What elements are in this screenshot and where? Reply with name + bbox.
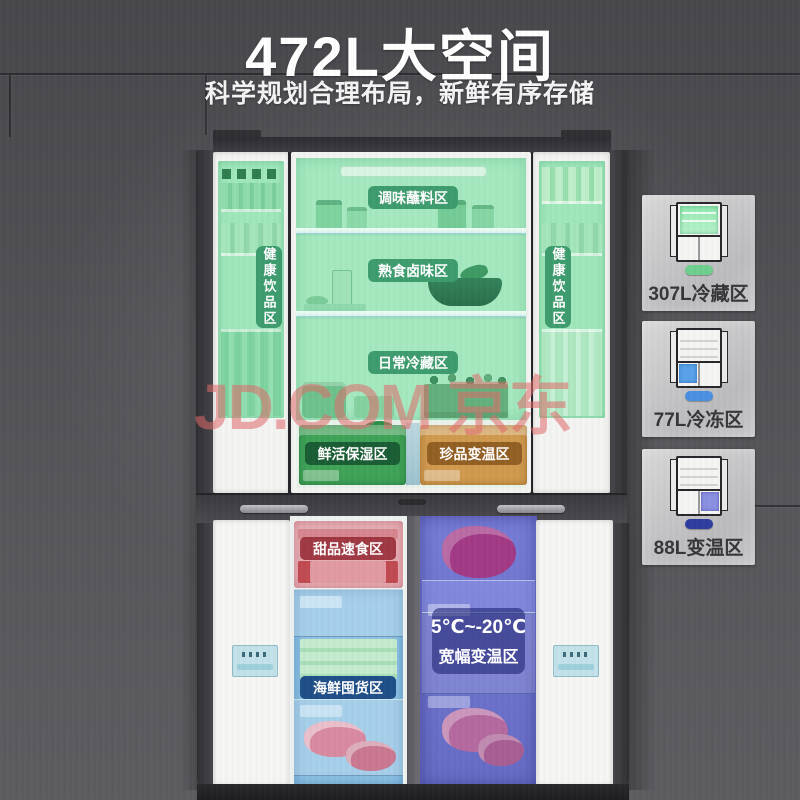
control-slot [558,664,594,670]
mini-fridge-icon [676,202,722,262]
drawer-logo-chip [424,470,460,481]
zone-label-dessert: 甜品速食区 [300,537,396,560]
ceiling-light [340,166,487,177]
fridge-door-flap-icon [670,205,677,257]
highlight-bottom-left-section [679,364,697,383]
capacity-pill [685,265,713,275]
capacity-card-cold: 307L冷藏区 [642,195,755,311]
capacity-card-label: 77L冷冻区 [642,405,755,432]
capacity-pill [685,391,713,401]
lower-right-door-edge [613,523,629,785]
highlight-bottom-right-section [701,492,719,511]
promo-image: 472L大空间 科学规划合理布局，新鲜有序存储 健康饮品区 [0,0,800,800]
highlight-top-section [680,206,718,234]
door-zone-label-left: 健康饮品区 [256,246,282,328]
hinge-right [497,505,565,513]
mini-fridge-icon [676,456,722,516]
meat-shape [442,526,516,578]
door-control-panel [232,645,278,677]
meat-shape [478,734,524,766]
door-bin-packs [221,183,281,212]
glass-shelf [296,228,526,234]
bowl-shape [428,278,502,306]
zone-label-wide-variable: 宽幅变温区 [438,643,518,667]
fridge-base [197,784,629,800]
frozen-packs [300,639,397,679]
variable-logo-chip [428,696,470,708]
fridge-door-flap-icon [721,205,728,257]
bottle-caps-row [222,169,280,179]
door-zone-label-right: 健康饮品区 [545,246,571,328]
hinge-left [240,505,308,513]
glass-shelf [296,311,526,317]
fridge-door-flap-icon [670,459,677,511]
capacity-card-freezer: 77L冷冻区 [642,321,755,437]
zone-label-cooked-food: 熟食卤味区 [368,259,458,282]
fridge-shelves-icon [680,334,718,358]
temp-range-label: 5℃~-20℃ [431,616,526,639]
capacity-card-label: 307L冷藏区 [642,279,755,306]
upper-right-door-edge [610,150,627,494]
frozen-meat-shape [346,741,396,771]
freezer-logo-chip [300,705,342,717]
fridge-door-flap-icon [670,331,677,383]
control-glyphs [563,652,589,657]
fridge-door-flap-icon [721,459,728,511]
freezer-logo-chip [300,596,342,608]
lower-left-door [213,520,290,786]
fridge-shelves-icon [680,462,718,486]
dessert-pack-row2 [298,561,398,583]
capacity-pill [685,519,713,529]
mid-notch [398,499,426,505]
capacity-card-label: 88L变温区 [642,533,755,560]
fridge-split-line [698,491,700,514]
mini-fridge-icon [676,328,722,388]
top-frame [213,137,611,153]
door-control-panel [553,645,599,677]
zone-label-condiment: 调味蘸料区 [368,186,458,209]
drawer-logo-chip [303,470,339,481]
lower-right-door [536,520,613,786]
board-shape [304,304,366,311]
capacity-card-variable: 88L变温区 [642,449,755,565]
door-bin-drinks [542,167,602,204]
fridge-split-line [698,363,700,386]
fridge-split-line [698,237,700,260]
freezer-center-divider [407,516,420,786]
watermark: JD.COM 京东 [194,356,571,448]
control-slot [237,664,273,670]
temp-panel: 5℃~-20℃ 宽幅变温区 [432,608,525,674]
control-glyphs [242,652,268,657]
wall-seam-right [752,505,800,507]
lower-left-door-edge [197,523,213,785]
fridge-door-flap-icon [721,331,728,383]
zone-label-seafood: 海鲜囤货区 [300,676,396,699]
page-subtitle: 科学规划合理布局，新鲜有序存储 [0,74,800,110]
pitcher-shape [332,270,352,306]
